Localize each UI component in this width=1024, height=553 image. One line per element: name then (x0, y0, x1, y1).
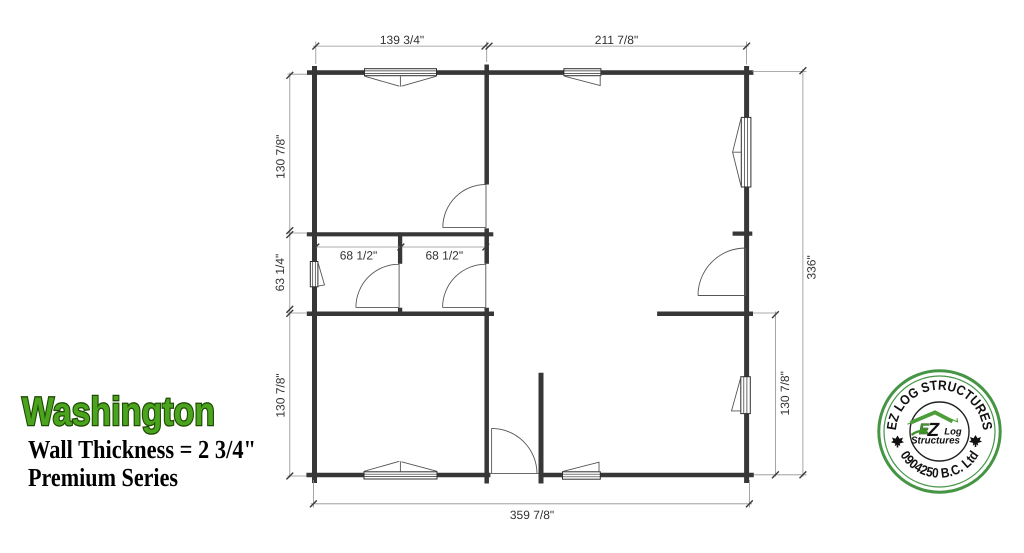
svg-text:Premium Series: Premium Series (28, 463, 178, 492)
svg-text:130 7/8": 130 7/8" (274, 373, 288, 417)
svg-text:Structures: Structures (911, 436, 960, 447)
svg-text:68 1/2": 68 1/2" (340, 249, 378, 263)
svg-text:Washington: Washington (22, 390, 215, 434)
svg-text:359 7/8": 359 7/8" (510, 508, 554, 522)
svg-text:Wall Thickness = 2 3/4": Wall Thickness = 2 3/4" (28, 435, 256, 464)
svg-text:130 7/8": 130 7/8" (274, 135, 288, 179)
svg-text:63 1/4": 63 1/4" (273, 254, 287, 292)
svg-text:336": 336" (805, 255, 819, 279)
svg-text:68 1/2": 68 1/2" (425, 249, 463, 263)
svg-text:139 3/4": 139 3/4" (380, 33, 424, 47)
svg-text:130 7/8": 130 7/8" (778, 371, 792, 415)
svg-text:211 7/8": 211 7/8" (595, 33, 638, 47)
